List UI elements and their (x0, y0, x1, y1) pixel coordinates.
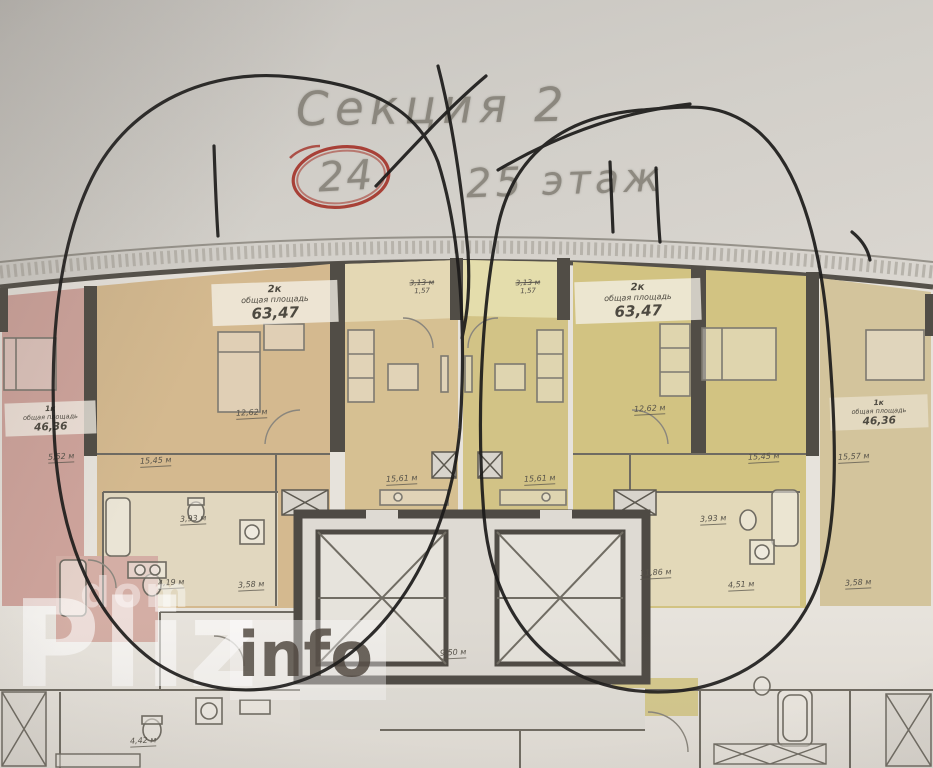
room-area-label: 11,86 м (640, 567, 672, 580)
room-area-label: 15,45 м (748, 451, 780, 464)
shaft-cross-right (497, 532, 623, 664)
floorplan-photo: Секция 2 24 25 этаж 1к общая площадь 46,… (0, 0, 933, 768)
room-area-label: 3,93 м (180, 513, 207, 525)
outer-wall-top (0, 262, 933, 288)
room-area-label: 4,42 м (130, 735, 157, 747)
elevator-door-right (540, 510, 572, 519)
room-area-label: 15,61 м (386, 473, 418, 486)
room-area-label: 4,51 м (728, 579, 755, 591)
apartment-pink-1k (2, 288, 84, 606)
apartment-label-tan-2k: 2к общая площадь 63,47 (211, 280, 338, 326)
apartment-area-value: 63,47 (578, 300, 699, 322)
yellow-lower-stub (612, 678, 698, 716)
elevator-shaft-right (497, 532, 623, 664)
apartment-beige-1k (820, 278, 931, 606)
vent-shafts (282, 452, 656, 515)
balcony-reduced-area: 1,57 (394, 286, 450, 296)
elevator-door-left (366, 510, 398, 519)
room-area-label: 3,93 м (700, 513, 727, 525)
bath-zone-right (640, 492, 800, 606)
closets (56, 744, 826, 767)
apartment-label-beige-1k: 1к общая площадь 46,36 (829, 394, 928, 430)
pen-flick-right (852, 232, 870, 260)
balcony-label-left: 3,13 м 1,57 (394, 277, 451, 296)
balcony-reduced-area: 1,57 (500, 286, 556, 296)
balcony-label-right: 3,13 м 1,57 (500, 277, 557, 296)
apartment-area-value: 46,36 (8, 420, 93, 435)
balcony-dentil-band (0, 247, 933, 272)
section-title: Секция 2 (296, 78, 571, 138)
floor-number-circled: 24 (317, 151, 376, 202)
watermark-pliz: Pliz (12, 586, 260, 706)
red-pen-tail (290, 146, 320, 158)
room-area-label: 5,52 м (48, 451, 75, 463)
room-area-label: 12,62 м (634, 403, 666, 416)
room-area-label: 9,50 м (440, 647, 467, 659)
room-area-label: 15,61 м (524, 473, 556, 486)
room-area-label: 15,45 м (140, 455, 172, 468)
apartment-label-yellow-2k: 2к общая площадь 63,47 (574, 278, 701, 324)
room-area-label: 15,57 м (838, 451, 870, 464)
apartment-area-value: 46,36 (833, 413, 925, 428)
furniture (4, 324, 924, 505)
apartment-area-value: 63,47 (215, 302, 336, 324)
bearing-walls (0, 258, 933, 456)
room-area-label: 12,62 м (236, 407, 268, 420)
floor-label: 25 этаж (465, 155, 664, 208)
watermark-info: info (238, 624, 373, 686)
apartment-label-pink-1k: 1к общая площадь 46,36 (4, 400, 96, 436)
facade-edge (0, 237, 933, 262)
room-area-label: 3,58 м (845, 577, 872, 589)
pen-tick-left (214, 146, 218, 236)
